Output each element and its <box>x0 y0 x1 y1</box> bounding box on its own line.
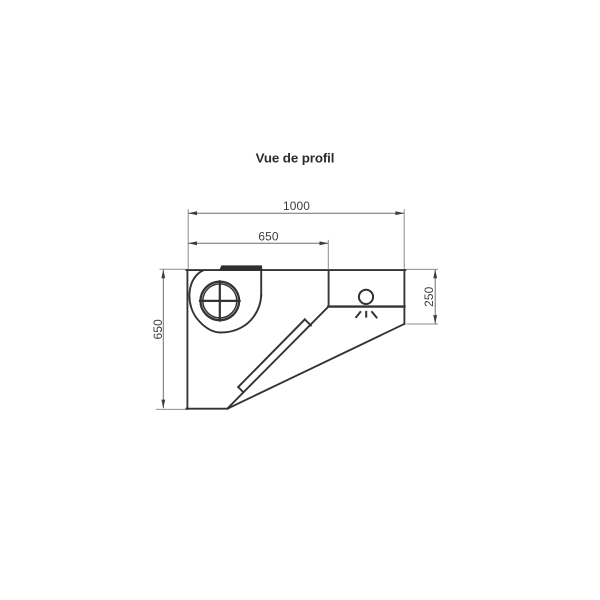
svg-text:250: 250 <box>422 286 436 307</box>
svg-text:650: 650 <box>151 319 165 340</box>
svg-text:Vue de profil: Vue de profil <box>256 151 335 166</box>
svg-text:1000: 1000 <box>283 199 310 213</box>
svg-text:650: 650 <box>258 230 279 244</box>
